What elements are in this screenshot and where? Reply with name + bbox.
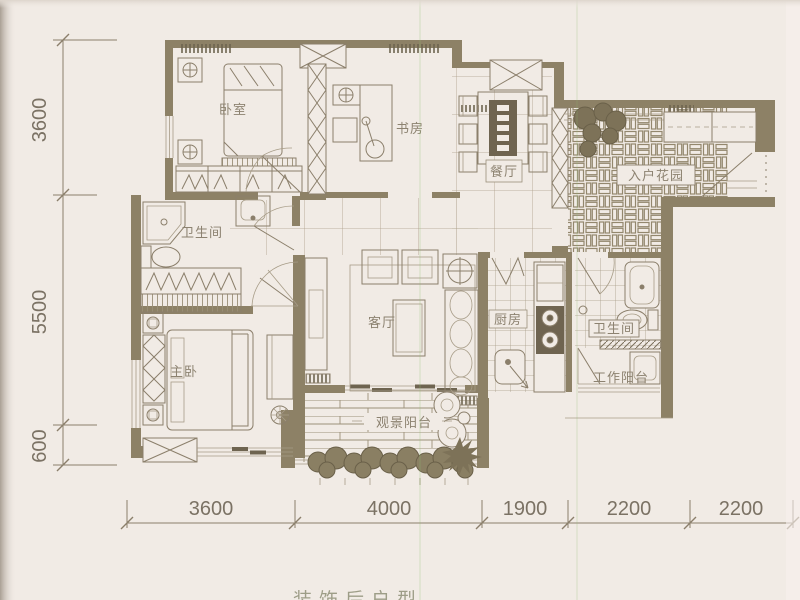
kitchen-sink	[495, 350, 528, 388]
bath2-label: 卫生间	[593, 321, 635, 336]
shaft-dining	[490, 60, 542, 90]
scan-left-edge	[0, 0, 16, 600]
dim-bottom-3600: 3600	[189, 498, 234, 520]
dim-left-3600: 3600	[29, 98, 51, 143]
dim-left-600: 600	[29, 429, 51, 462]
master-headboard-diamonds	[143, 335, 165, 403]
tv-cabinet	[305, 258, 327, 370]
bay-box-master	[143, 438, 197, 462]
wall-dining-garden	[552, 108, 568, 208]
bottom-caption: 装饰后户型	[293, 589, 423, 600]
kitchen-label: 厨房	[494, 312, 522, 327]
dim-bottom-1900: 1900	[503, 498, 548, 520]
rug-fringe	[306, 374, 330, 383]
scanned-floorplan-page: 卧室 书房 餐厅 入户花园 卫生间 客厅 厨房 卫生间 工作阳台 主卧 观景阳台…	[0, 0, 800, 600]
master-bedroom-label: 主卧	[170, 364, 198, 379]
master-plant	[271, 406, 289, 424]
floorplan-drawing: 卧室 书房 餐厅 入户花园 卫生间 客厅 厨房 卫生间 工作阳台 主卧 观景阳台…	[0, 0, 800, 600]
view-balcony-label: 观景阳台	[376, 415, 432, 430]
kitchen-stove	[536, 306, 564, 354]
dining-label: 餐厅	[490, 164, 518, 179]
living-label: 客厅	[368, 315, 396, 330]
scan-top-edge	[0, 0, 800, 8]
bath2-threshold	[600, 340, 661, 349]
entrance-garden-label: 入户花园	[628, 168, 684, 183]
dim-left-5500: 5500	[29, 290, 51, 335]
bath1-label: 卫生间	[181, 225, 223, 240]
dim-bottom-2200-b: 2200	[719, 498, 764, 520]
dim-bottom-2200-a: 2200	[607, 498, 652, 520]
wall-bedroom-study	[308, 64, 326, 194]
garden-bench	[664, 112, 756, 142]
work-balcony-label: 工作阳台	[593, 370, 649, 385]
bedroom-label: 卧室	[219, 102, 247, 117]
dim-bottom-4000: 4000	[367, 498, 412, 520]
